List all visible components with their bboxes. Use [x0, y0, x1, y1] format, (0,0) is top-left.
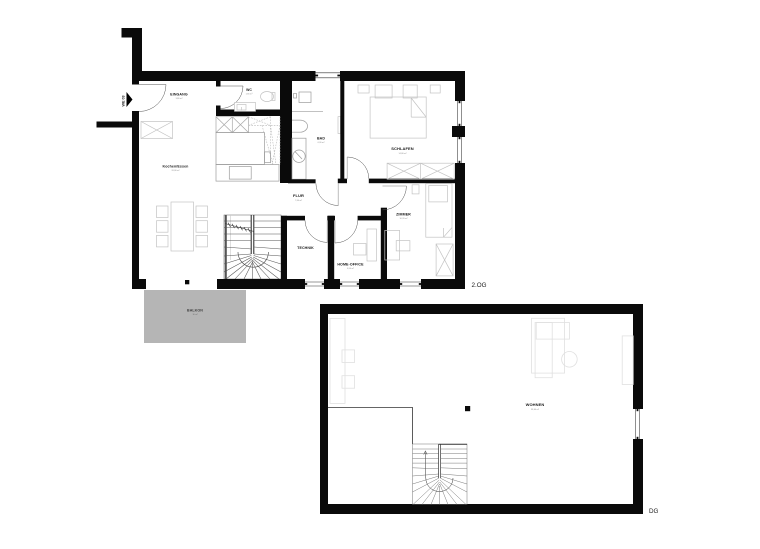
- svg-text:10 m²: 10 m²: [192, 313, 197, 316]
- svg-text:EINGANG: EINGANG: [170, 93, 188, 97]
- svg-text:SCHLAFEN: SCHLAFEN: [391, 146, 414, 151]
- svg-text:38,60 m²: 38,60 m²: [531, 408, 539, 411]
- svg-text:3,80 m²: 3,80 m²: [176, 97, 183, 100]
- svg-text:WE 03: WE 03: [122, 95, 126, 106]
- svg-text:7,60 m²: 7,60 m²: [295, 199, 302, 202]
- svg-text:Kochen/Essen: Kochen/Essen: [163, 165, 189, 169]
- svg-text:FLUR: FLUR: [293, 193, 304, 198]
- svg-text:2.OG: 2.OG: [472, 282, 487, 289]
- svg-text:ZIMMER: ZIMMER: [396, 213, 411, 217]
- svg-text:BAD: BAD: [317, 137, 325, 141]
- svg-text:14,80 m²: 14,80 m²: [399, 152, 407, 155]
- svg-text:HOME-OFFICE: HOME-OFFICE: [337, 263, 364, 267]
- svg-text:6,50 m²: 6,50 m²: [347, 267, 354, 270]
- svg-text:26,80 m²: 26,80 m²: [172, 169, 180, 172]
- svg-text:WC: WC: [246, 88, 252, 92]
- svg-text:6,30 m²: 6,30 m²: [318, 141, 325, 144]
- svg-text:1,90 m²: 1,90 m²: [246, 93, 253, 96]
- svg-text:WOHNEN: WOHNEN: [526, 402, 545, 407]
- svg-text:10,20 m²: 10,20 m²: [400, 217, 408, 220]
- svg-text:TECHNIK: TECHNIK: [297, 246, 314, 250]
- svg-text:DG: DG: [649, 508, 659, 515]
- svg-text:BALKON: BALKON: [187, 309, 203, 313]
